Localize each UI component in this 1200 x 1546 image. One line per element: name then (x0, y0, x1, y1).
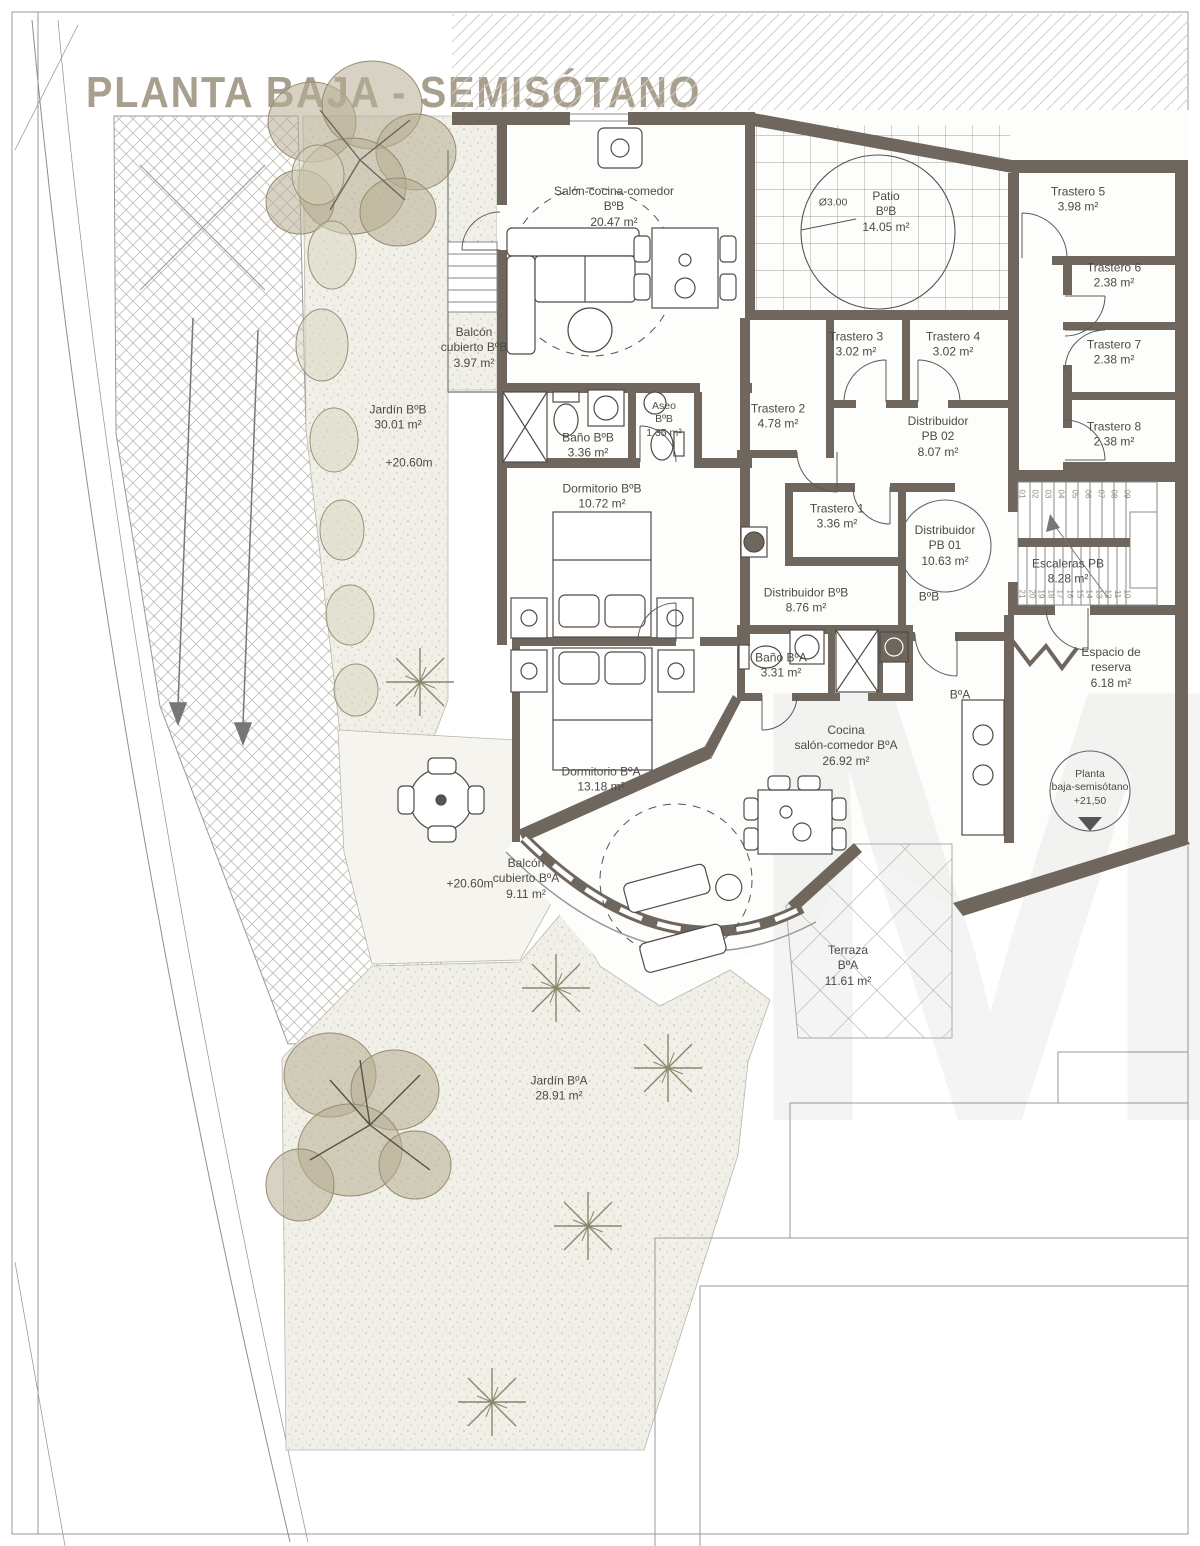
room-label-dist-pb01: DistribuidorPB 0110.63 m² (915, 523, 976, 569)
room-label-bano-ba: Baño BºA3.31 m² (755, 651, 807, 682)
tree-top (266, 61, 456, 246)
kitchen-bb (598, 128, 642, 168)
stair-step-numbers-bottom: 212019181716151413121110 (1016, 588, 1130, 600)
level-label-planta-baja: Plantabaja-semisótano+21,50 (1051, 768, 1128, 808)
room-label-balcon-bb: Balcóncubierto BºB3.97 m² (441, 325, 507, 371)
level-label-jardin-bb: +20.60m (385, 455, 432, 470)
room-label-jardin-bb: Jardín BºB30.01 m² (369, 403, 426, 434)
exterior-stairs-bb (448, 242, 497, 312)
level-label-terrace: +20.60m (446, 876, 493, 891)
room-label-dist-bb: Distribuidor BºB8.76 m² (764, 586, 848, 617)
room-label-aseo-bb: AseoBºB1.35 m² (646, 400, 682, 440)
unit-label-ba: BºA (950, 687, 970, 702)
room-label-trastero5: Trastero 53.98 m² (1051, 185, 1105, 216)
room-label-trastero1: Trastero 13.36 m² (810, 502, 864, 533)
room-label-trastero8: Trastero 82.38 m² (1087, 420, 1141, 451)
room-label-cocina-ba: Cocinasalón-comedor BºA26.92 m² (794, 723, 897, 769)
room-label-dorm-ba: Dormitorio BºA13.18 m² (561, 765, 640, 796)
room-label-trastero3: Trastero 33.02 m² (829, 330, 883, 361)
window-north (570, 110, 628, 127)
room-label-dist-pb02: DistribuidorPB 028.07 m² (908, 414, 969, 460)
unit-label-bb: BºB (919, 589, 939, 604)
room-label-dorm-bb: Dormitorio BºB10.72 m² (562, 482, 641, 513)
room-label-salon-bb: Salón-cocina-comedorBºB20.47 m² (554, 184, 674, 230)
shaft (741, 527, 767, 557)
room-label-jardin-ba: Jardín BºA28.91 m² (530, 1074, 587, 1105)
room-label-trastero6: Trastero 62.38 m² (1087, 261, 1141, 292)
kitchen-ba (962, 700, 1004, 835)
room-label-bano-bb: Baño BºB3.36 m² (562, 431, 614, 462)
floor-plan-page: PLANTA BAJA - SEMISÓTANO (0, 0, 1200, 1546)
stair-step-numbers-top: 010203040506070809 (1016, 488, 1130, 500)
room-label-trastero4: Trastero 43.02 m² (926, 330, 980, 361)
room-label-escaleras: Escaleras PB8.28 m² (1032, 557, 1104, 588)
room-label-balcon-ba: Balcóncubierto BºA9.11 m² (493, 856, 559, 902)
dimension-label-patio: Ø3.00 (819, 196, 848, 209)
room-label-trastero7: Trastero 72.38 m² (1087, 338, 1141, 369)
room-label-trastero2: Trastero 24.78 m² (751, 402, 805, 433)
room-label-espacio: Espacio dereserva6.18 m² (1081, 645, 1140, 691)
room-label-terraza: TerrazaBºA11.61 m² (825, 943, 871, 989)
room-label-patio: PatioBºB14.05 m² (862, 189, 909, 235)
